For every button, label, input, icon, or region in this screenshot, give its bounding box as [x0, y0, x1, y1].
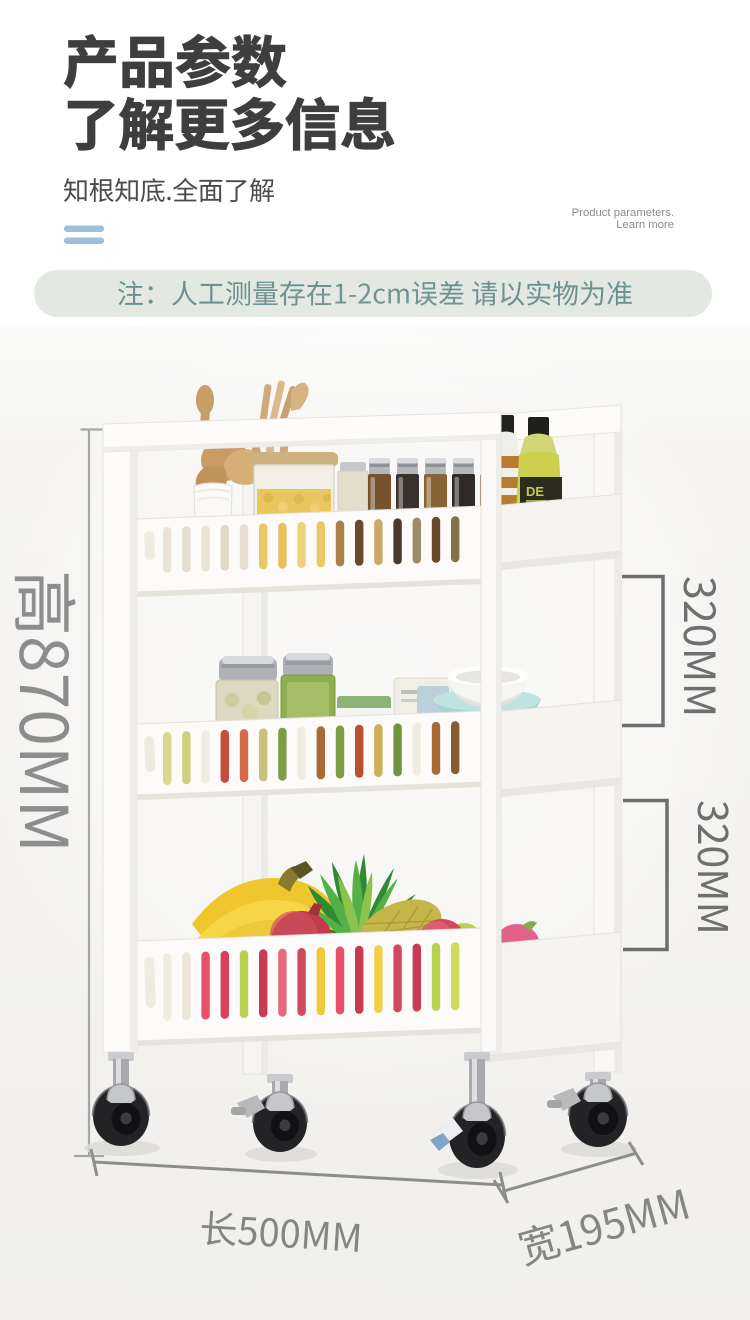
svg-text:Learn more: Learn more — [616, 219, 674, 231]
svg-text:DE: DE — [526, 484, 544, 499]
svg-text:Product parameters.: Product parameters. — [572, 207, 674, 219]
